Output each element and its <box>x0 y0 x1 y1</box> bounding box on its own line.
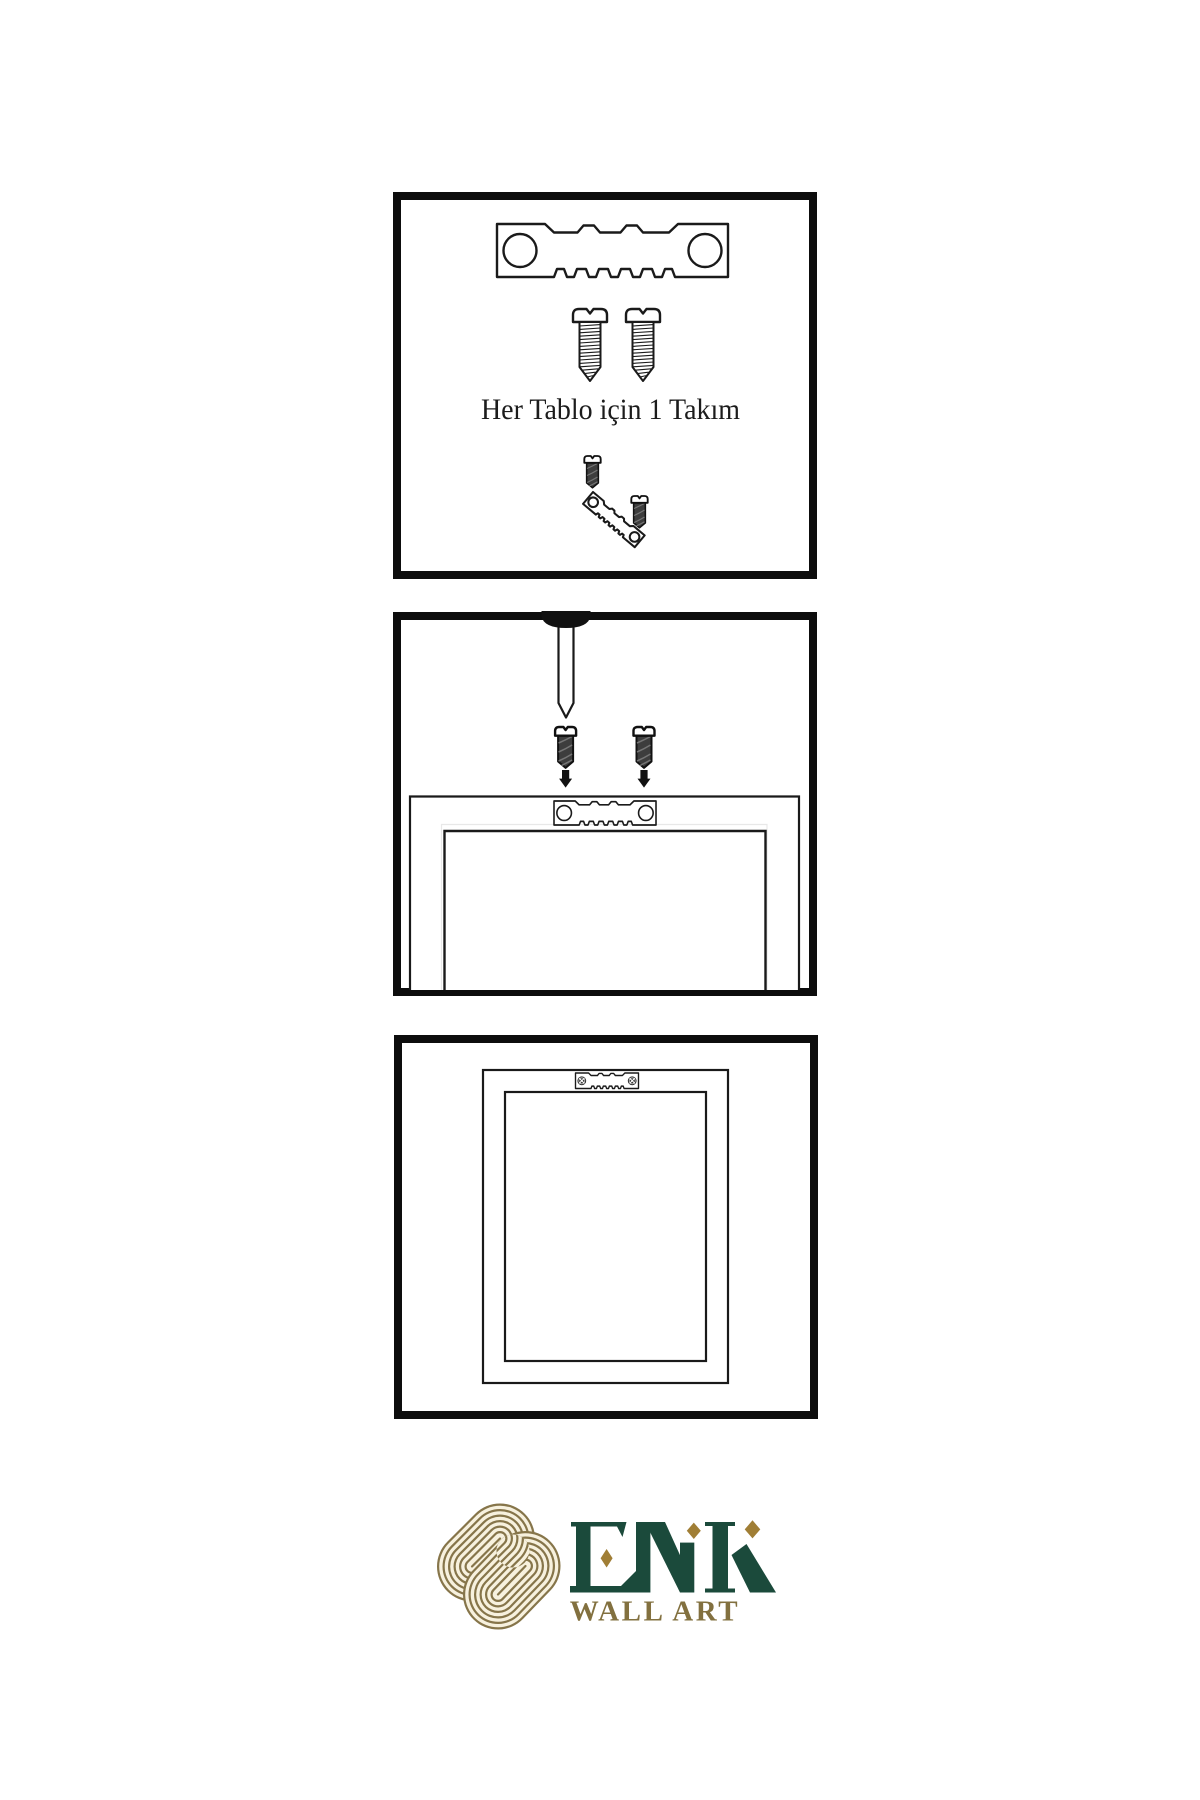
svg-text:WALL ART: WALL ART <box>570 1596 740 1628</box>
svg-text:Her Tablo için 1 Takım: Her Tablo için 1 Takım <box>481 394 740 426</box>
